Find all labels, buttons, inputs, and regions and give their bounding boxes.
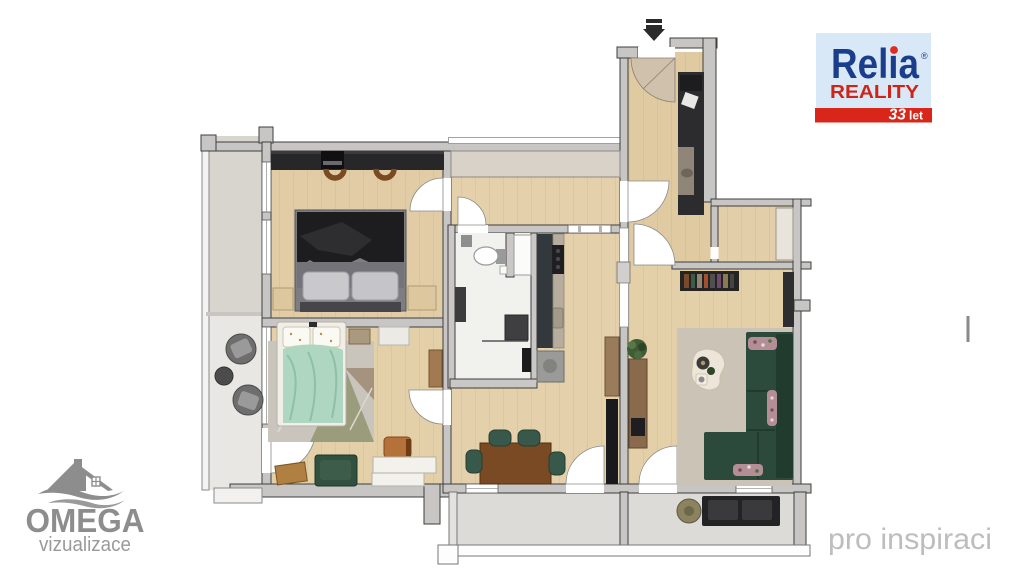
svg-text:pro inspiraci: pro inspiraci bbox=[828, 523, 992, 556]
svg-text:®: ® bbox=[921, 51, 928, 61]
svg-text:REALITY: REALITY bbox=[830, 81, 920, 102]
svg-text:33 let: 33 let bbox=[889, 107, 923, 124]
svg-text:Relia: Relia bbox=[831, 40, 920, 87]
svg-text:vizualizace: vizualizace bbox=[39, 534, 131, 556]
